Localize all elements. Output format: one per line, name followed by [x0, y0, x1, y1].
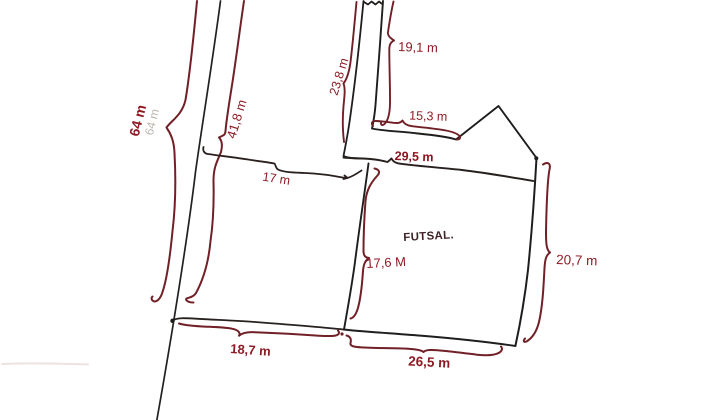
svg-text:20,7 m: 20,7 m	[556, 252, 598, 268]
svg-text:17,6 M: 17,6 M	[366, 254, 406, 271]
svg-text:29,5 m: 29,5 m	[394, 149, 433, 164]
svg-text:26,5 m: 26,5 m	[408, 354, 451, 371]
svg-text:FUTSAL.: FUTSAL.	[403, 229, 454, 244]
svg-text:19,1 m: 19,1 m	[398, 39, 438, 55]
svg-text:18,7 m: 18,7 m	[230, 341, 271, 359]
svg-text:15,3 m: 15,3 m	[409, 109, 448, 124]
svg-text:17 m: 17 m	[262, 170, 292, 188]
